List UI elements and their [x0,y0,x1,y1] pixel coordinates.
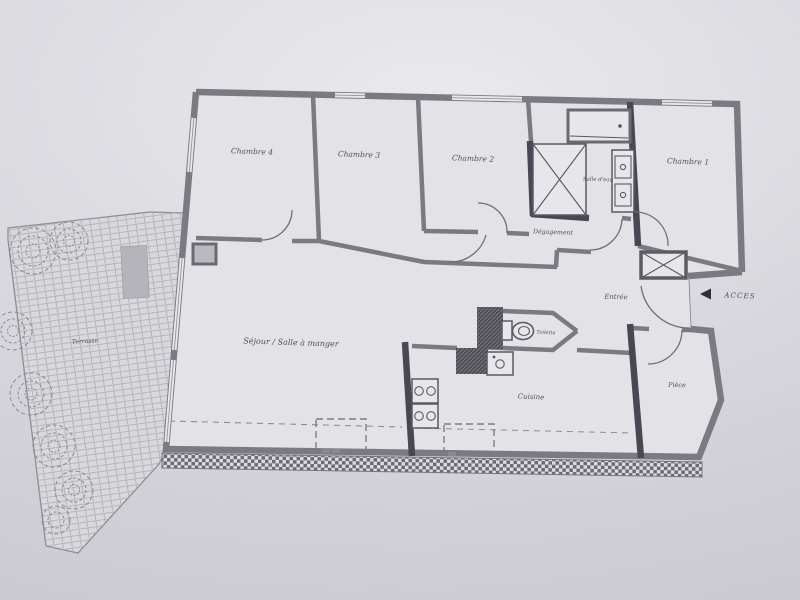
window [452,98,522,100]
cuisine-label: Cuisine [518,393,545,402]
chambre1-label: Chambre 1 [667,156,709,166]
terrace-planter [121,245,150,298]
piece-label: Pièce [667,381,686,390]
wc-icon [502,321,534,340]
chambre3-label: Chambre 3 [338,149,381,159]
toilette-label: Toilette [536,330,555,337]
stove-icon [412,379,438,428]
salle-deau-label: Salle d'eau [583,176,614,183]
annotation-mark [322,449,330,453]
terrace-area: Terrasse [0,212,184,553]
terrasse-label: Terrasse [72,337,99,345]
access-indicator: ACCES [700,289,756,301]
chambre4-label: Chambre 4 [231,146,274,156]
floorplan-drawing: Terrasse [0,0,800,600]
vanity-sink-icon [612,150,634,212]
shower-icon [533,144,586,215]
window [335,95,365,96]
entree-label: Entrée [603,293,628,302]
window [662,102,712,103]
toilette-wall-block [477,307,503,349]
closet [568,110,630,142]
degagement-label: Dégagement [532,228,574,236]
entry-closet [641,252,686,278]
duct-block [193,244,216,264]
access-arrow-icon [700,289,711,300]
annotation-mark [448,452,456,456]
terrace-decking [8,212,184,553]
kitchen-sink-icon [487,352,513,375]
access-label: ACCES [723,290,756,300]
floorplan-photo: Terrasse [0,0,800,600]
annotation-mark [332,449,340,453]
kitchen-counter [456,348,488,374]
chambre2-label: Chambre 2 [452,153,495,163]
